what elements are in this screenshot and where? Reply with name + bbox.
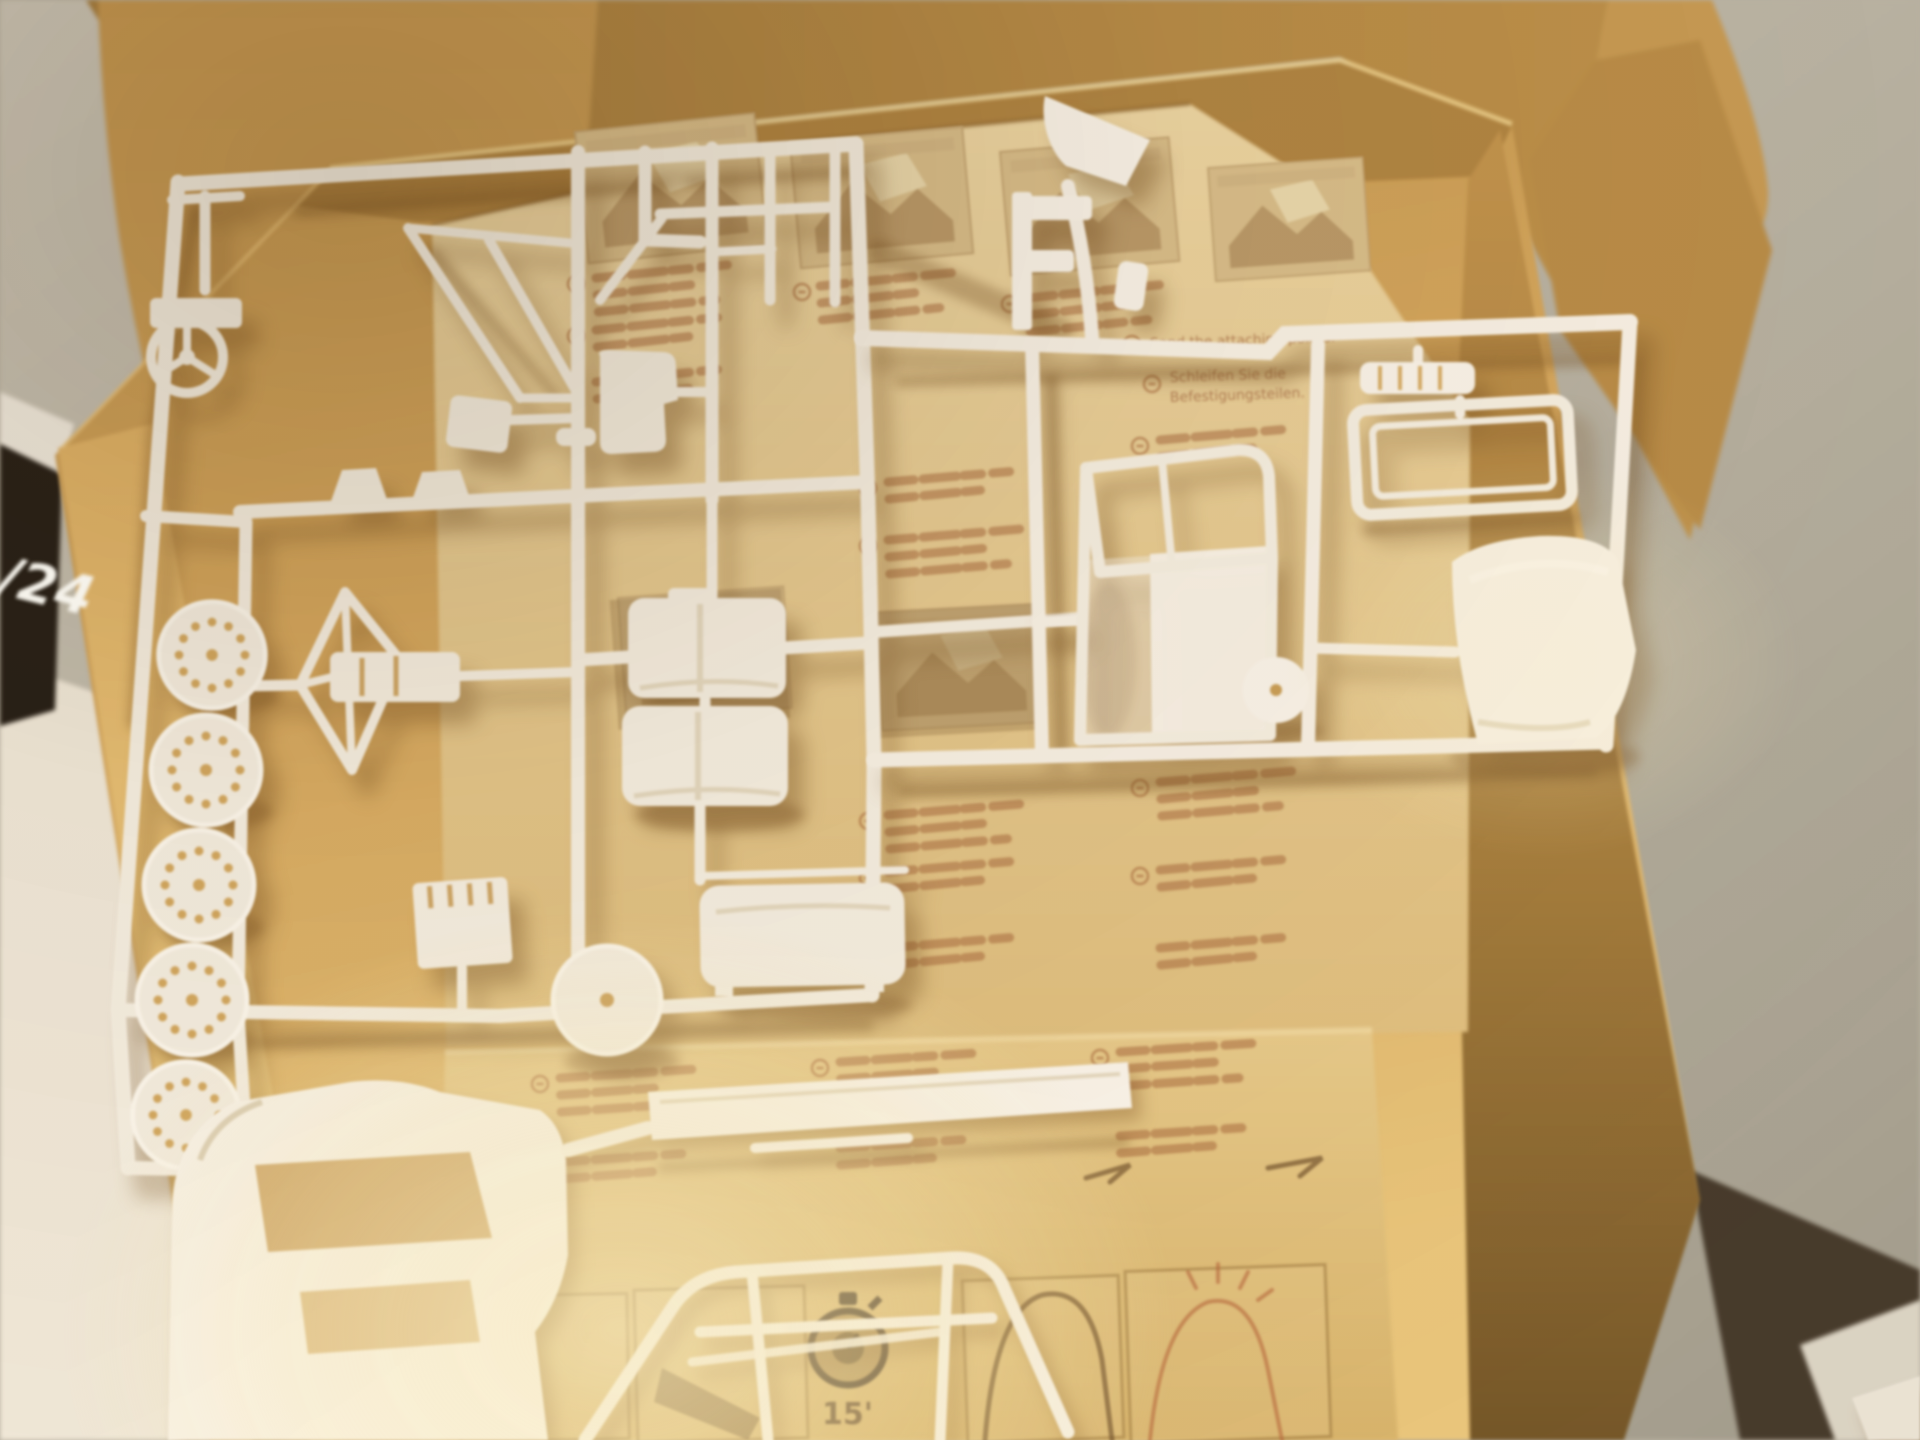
lighting [0,0,1920,1440]
photo-model-kit-open-box: Sand the attaching points. Schleifen Sie… [0,0,1920,1440]
vignette [0,0,1920,1440]
